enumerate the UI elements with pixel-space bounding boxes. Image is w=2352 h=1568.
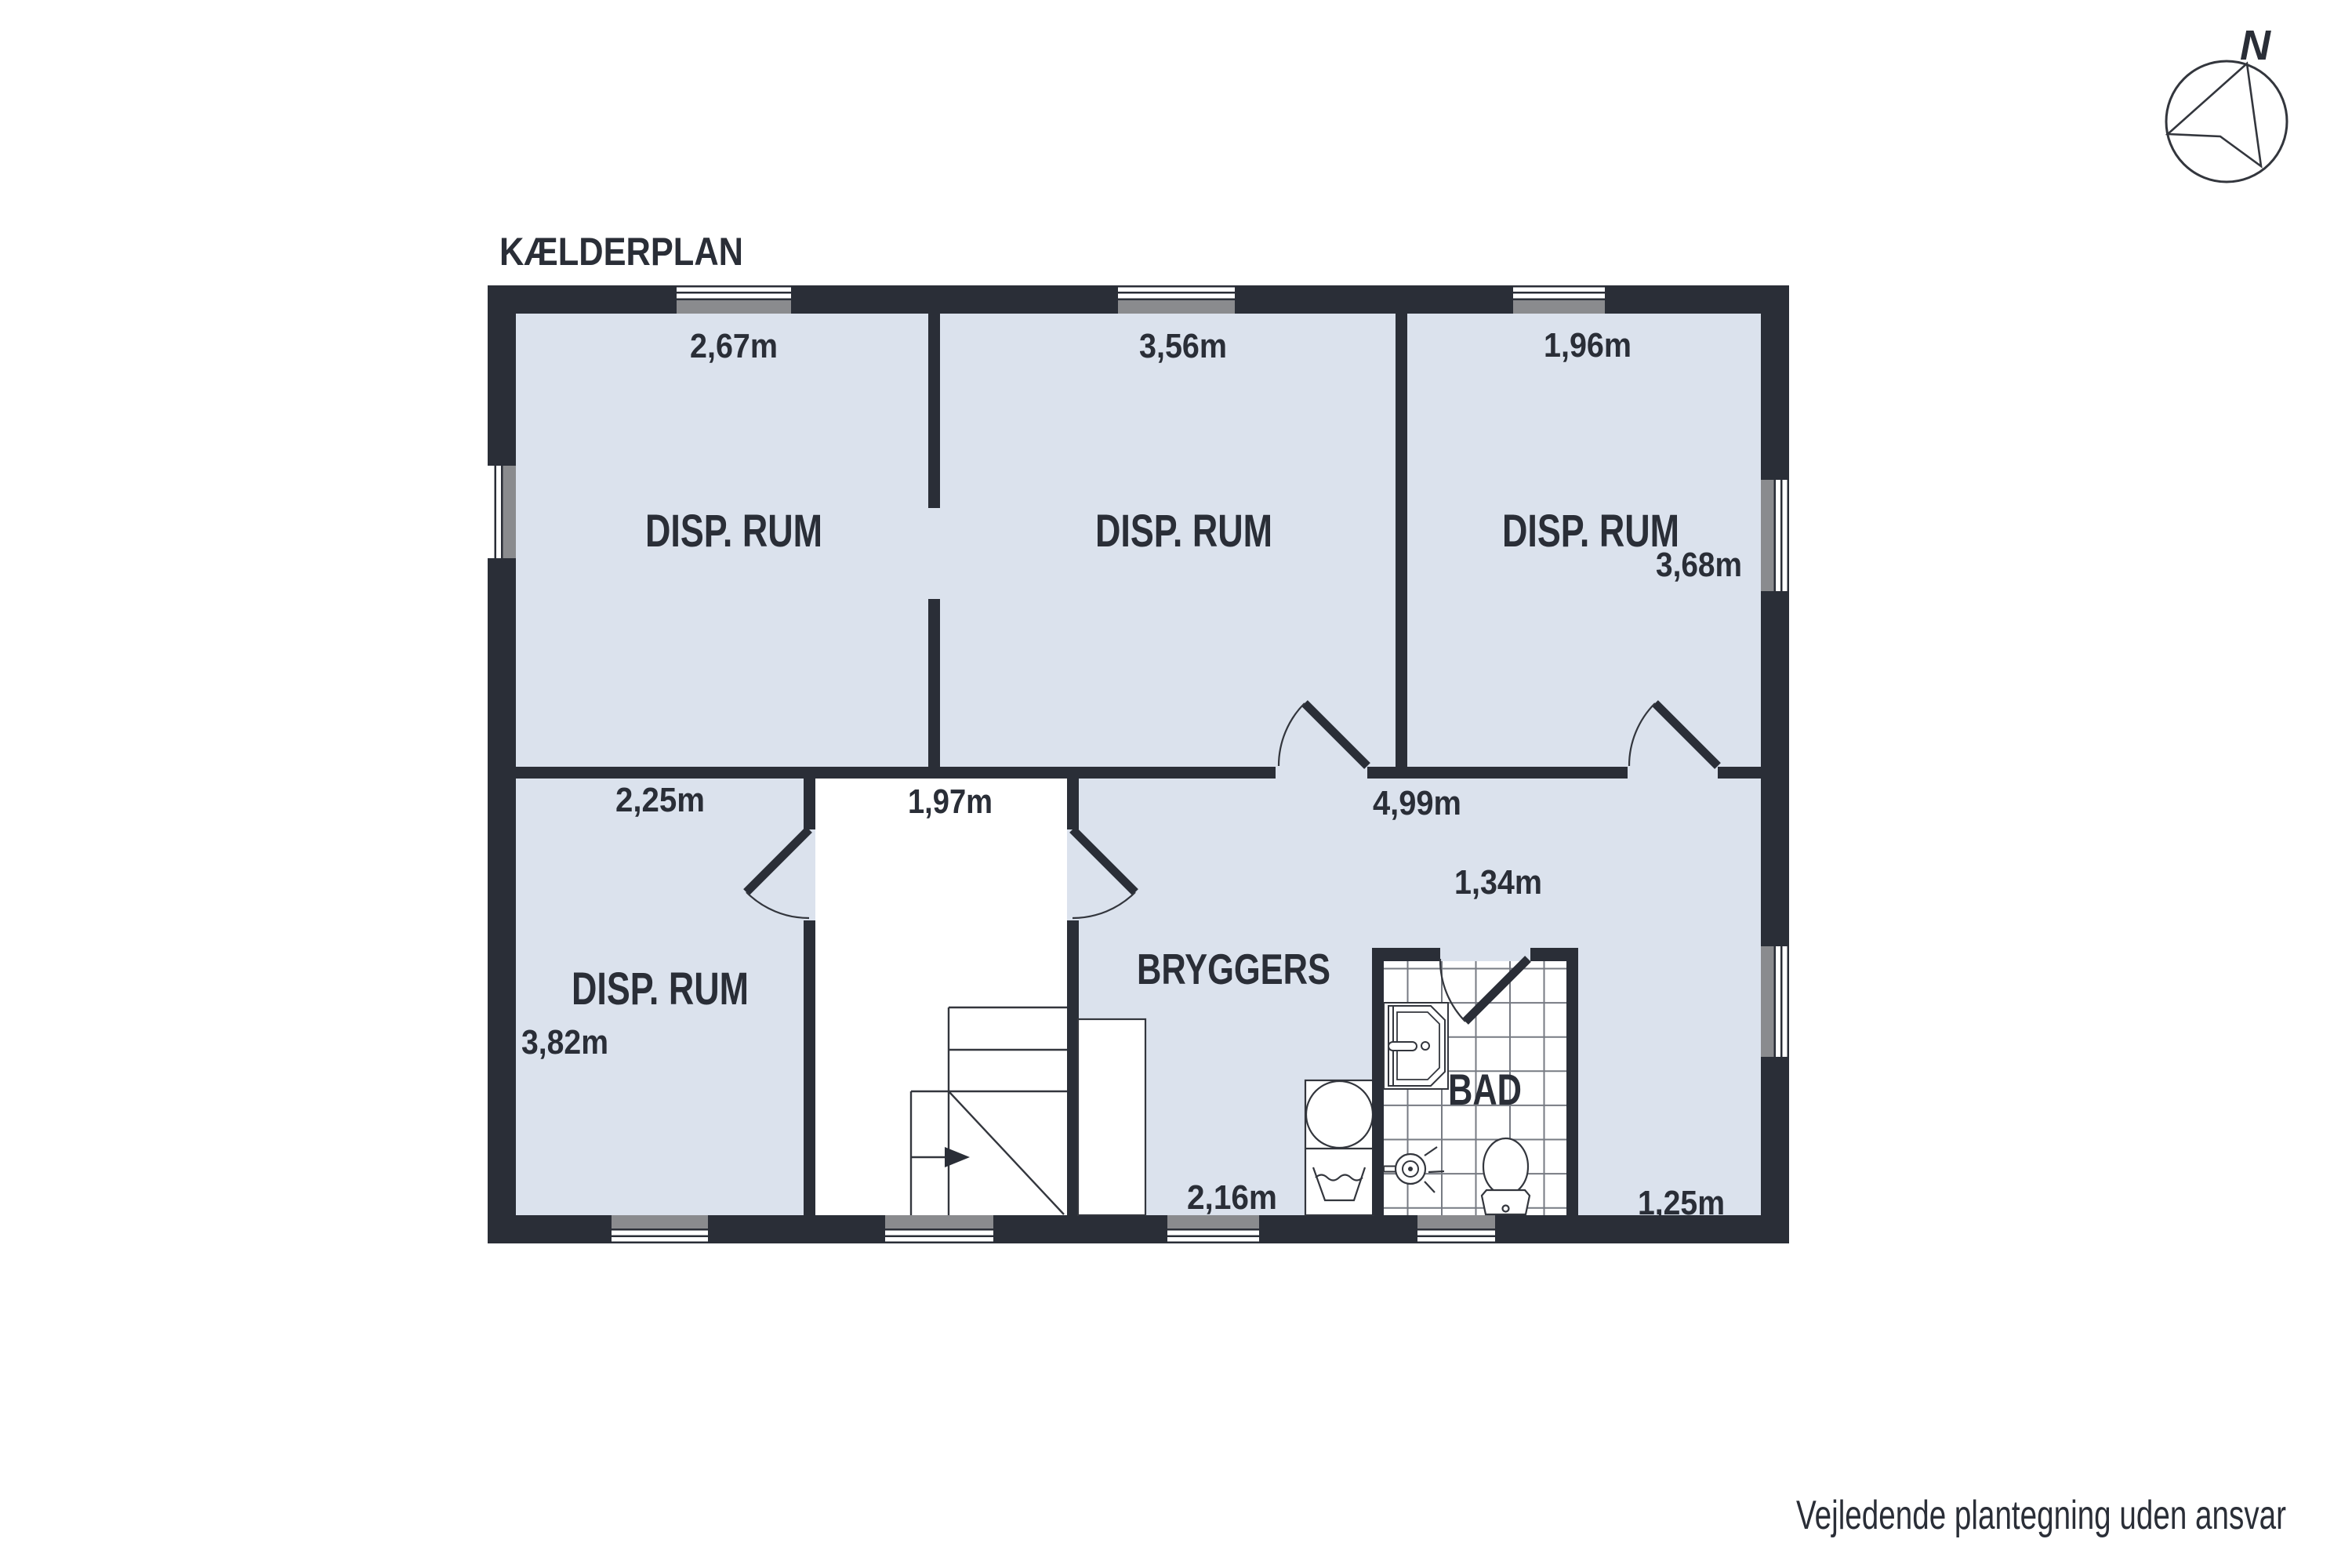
svg-text:1,34m: 1,34m [1454,863,1542,902]
svg-text:2,67m: 2,67m [690,327,778,365]
svg-text:KÆLDERPLAN: KÆLDERPLAN [499,230,743,274]
svg-text:1,96m: 1,96m [1544,326,1632,365]
svg-text:DISP. RUM: DISP. RUM [645,506,822,557]
svg-text:2,25m: 2,25m [615,781,705,819]
svg-text:2,16m: 2,16m [1187,1178,1277,1217]
svg-text:1,25m: 1,25m [1638,1184,1725,1222]
svg-text:DISP. RUM: DISP. RUM [1095,506,1272,557]
svg-text:3,56m: 3,56m [1139,327,1227,365]
svg-text:N: N [2240,22,2271,69]
svg-text:BAD: BAD [1448,1065,1522,1114]
svg-text:DISP. RUM: DISP. RUM [572,964,749,1014]
svg-text:4,99m: 4,99m [1373,784,1461,822]
svg-text:3,82m: 3,82m [521,1023,608,1062]
svg-text:3,68m: 3,68m [1656,546,1742,584]
svg-text:DISP. RUM: DISP. RUM [1502,506,1679,557]
svg-text:Vejledende plantegning uden an: Vejledende plantegning uden ansvar [1796,1493,2286,1538]
svg-text:BRYGGERS: BRYGGERS [1137,945,1330,993]
svg-text:1,97m: 1,97m [908,782,993,821]
